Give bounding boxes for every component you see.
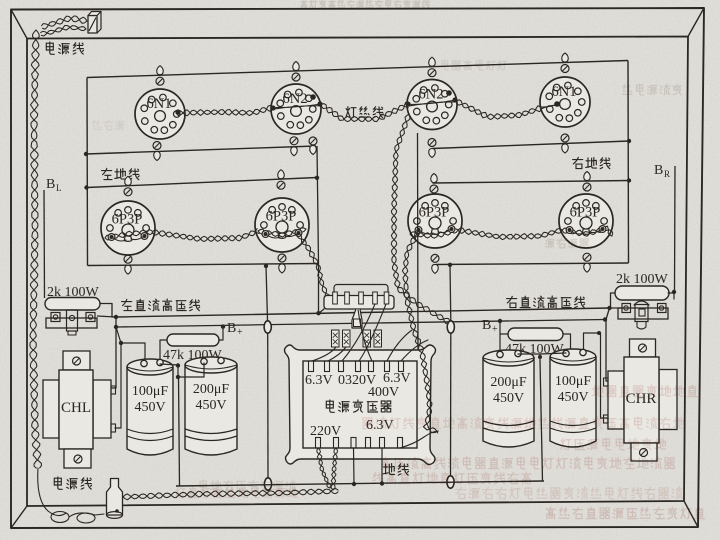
svg-text:CHL: CHL bbox=[61, 400, 91, 416]
svg-text:220V: 220V bbox=[310, 424, 341, 439]
svg-text:6P3P: 6P3P bbox=[570, 205, 601, 221]
svg-text:6N1: 6N1 bbox=[552, 84, 577, 100]
svg-text:400V: 400V bbox=[368, 385, 399, 400]
svg-text:6P3P: 6P3P bbox=[112, 212, 143, 228]
svg-text:450V: 450V bbox=[557, 390, 588, 405]
svg-text:6P3P: 6P3P bbox=[419, 205, 450, 221]
svg-text:+: + bbox=[492, 324, 498, 335]
svg-text:6P3P: 6P3P bbox=[266, 209, 297, 225]
svg-text:B: B bbox=[46, 177, 55, 192]
svg-text:450V: 450V bbox=[493, 391, 524, 406]
svg-text:2k 100W: 2k 100W bbox=[616, 272, 669, 287]
svg-text:B: B bbox=[227, 321, 236, 336]
svg-text:6N2: 6N2 bbox=[419, 87, 444, 103]
svg-text:6.3V: 6.3V bbox=[383, 371, 411, 386]
svg-text:B: B bbox=[482, 318, 491, 333]
svg-text:6.3V: 6.3V bbox=[305, 373, 333, 388]
svg-text:+: + bbox=[237, 327, 243, 338]
svg-text:200μF: 200μF bbox=[193, 382, 230, 397]
svg-text:R: R bbox=[664, 169, 670, 179]
svg-text:200μF: 200μF bbox=[490, 375, 527, 390]
svg-text:6N2: 6N2 bbox=[283, 91, 308, 107]
svg-text:B: B bbox=[654, 163, 663, 178]
svg-text:L: L bbox=[56, 183, 62, 193]
svg-text:450V: 450V bbox=[195, 398, 226, 413]
svg-text:100μF: 100μF bbox=[555, 374, 592, 389]
svg-text:100μF: 100μF bbox=[132, 384, 169, 399]
svg-text:6N1: 6N1 bbox=[147, 96, 172, 112]
svg-text:450V: 450V bbox=[134, 400, 165, 415]
